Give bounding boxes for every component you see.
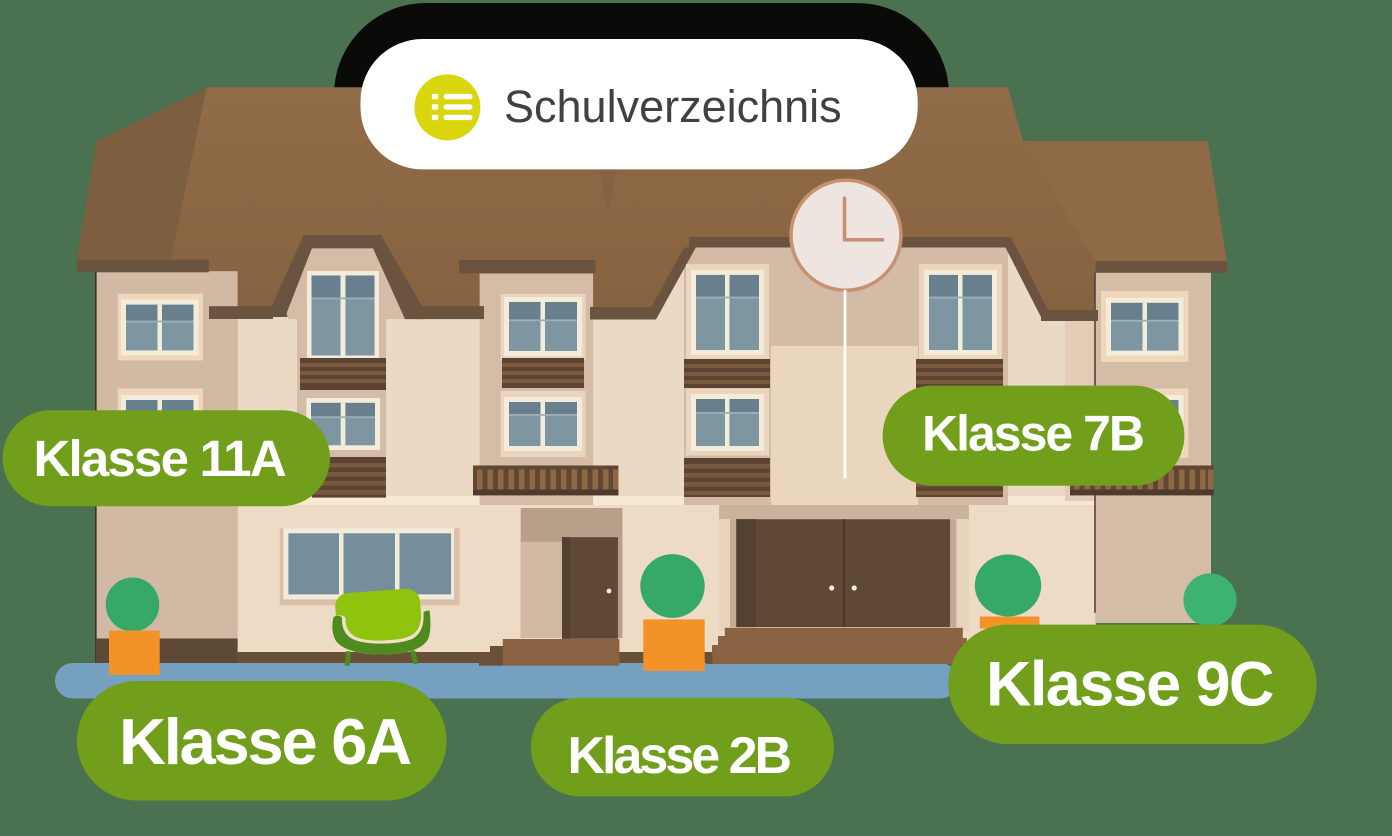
svg-text:Klasse 9C: Klasse 9C (986, 650, 1273, 720)
svg-text:Klasse 11A: Klasse 11A (34, 430, 286, 487)
svg-text:Klasse 2B: Klasse 2B (568, 727, 791, 785)
svg-text:Klasse 7B: Klasse 7B (922, 406, 1143, 462)
svg-text:Schulverzeichnis: Schulverzeichnis (504, 81, 842, 132)
svg-text:Klasse 6A: Klasse 6A (119, 705, 411, 778)
